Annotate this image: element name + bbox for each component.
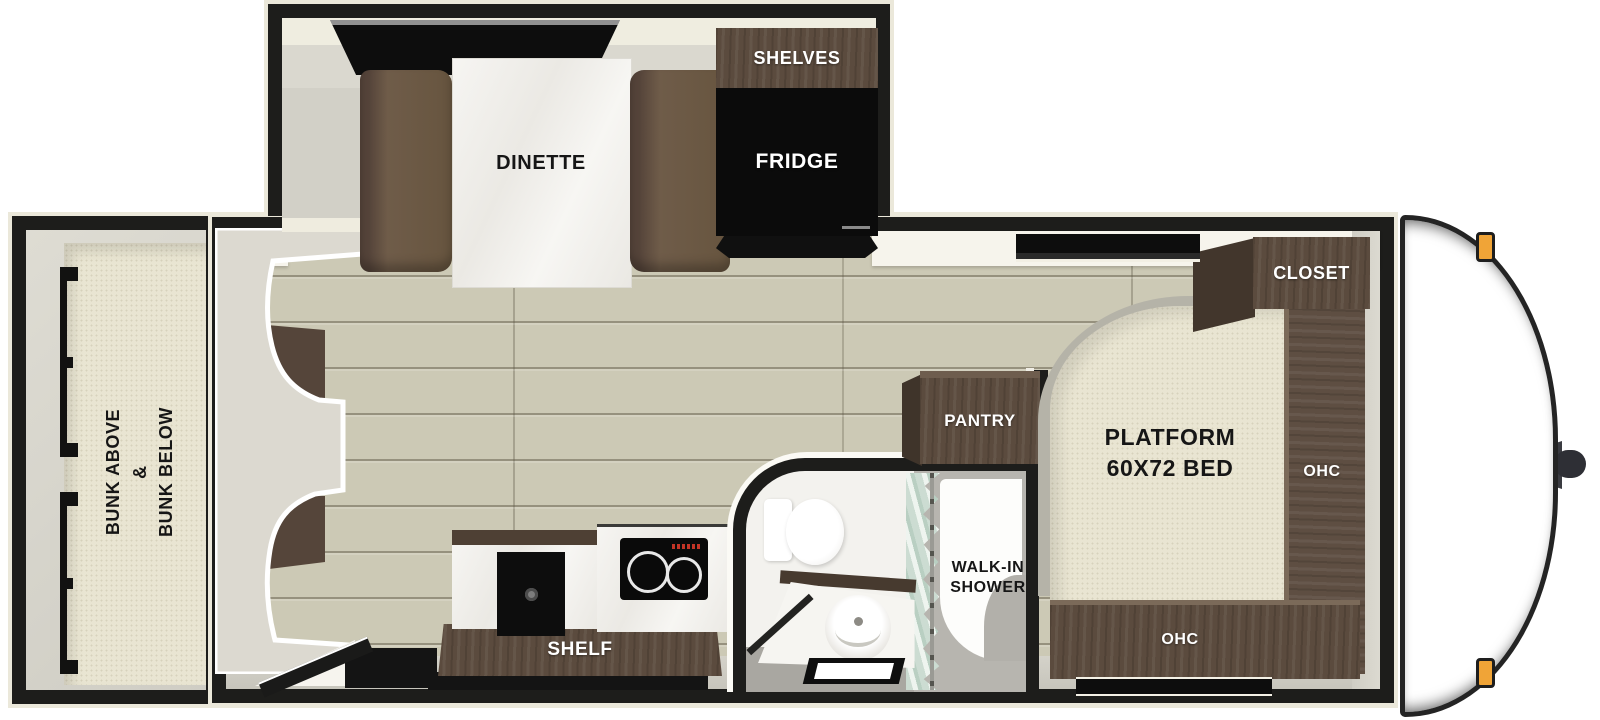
pantry-label: PANTRY [944, 410, 1016, 431]
shelves-cabinet: SHELVES [716, 28, 878, 88]
cooktop [620, 538, 708, 600]
fridge-handle [842, 226, 870, 229]
bedroom-lower-window-icon [1076, 677, 1272, 696]
pantry-side [902, 374, 922, 466]
marker-light-icon [1476, 658, 1495, 688]
walk-in-shower-line1: WALK-IN [952, 558, 1025, 578]
cabinet-face [215, 228, 363, 674]
dinette-bench-right [630, 70, 730, 272]
walk-in-shower-line2: SHOWER [950, 578, 1026, 598]
pantry-cabinet: PANTRY [920, 378, 1040, 464]
front-cap [1400, 215, 1558, 717]
burner-icon [627, 551, 669, 593]
fridge-label: FRIDGE [756, 149, 839, 175]
bedroom-window-icon [1016, 234, 1200, 262]
walk-in-shower-label: WALK-IN SHOWER [924, 552, 1052, 604]
bed-label: PLATFORM 60X72 BED [1050, 420, 1290, 486]
bed-label-line2: 60X72 BED [1107, 454, 1234, 483]
rear-curved-cabinet [215, 228, 363, 674]
ohc-right-label: OHC [1284, 458, 1360, 486]
dinette-label: DINETTE [452, 148, 630, 178]
closet: CLOSET [1253, 237, 1370, 309]
sink-drain-icon [525, 588, 538, 601]
burner-icon [666, 557, 702, 593]
floorplan-canvas: BUNK ABOVE & BUNK BELOW DINETTE SHELVES … [0, 0, 1600, 720]
cooktop-controls [672, 544, 702, 549]
ohc-bottom-label: OHC [1100, 626, 1260, 654]
bunk-label-line3: BUNK BELOW [155, 407, 178, 537]
fridge-base [716, 236, 878, 258]
fridge: FRIDGE [716, 88, 878, 236]
dinette-bench-left [360, 70, 452, 272]
hitch-ball-mount [1554, 450, 1586, 478]
bed-label-line1: PLATFORM [1105, 423, 1236, 452]
bunk-label-line1: BUNK ABOVE [102, 409, 125, 535]
bunk-label-line2: & [129, 465, 152, 479]
closet-side [1193, 238, 1255, 332]
kitchen-shelf-label: SHELF [438, 632, 722, 668]
marker-light-icon [1476, 232, 1495, 262]
shelves-label: SHELVES [754, 47, 841, 70]
kitchen-sink [497, 552, 565, 636]
closet-label: CLOSET [1273, 262, 1350, 285]
